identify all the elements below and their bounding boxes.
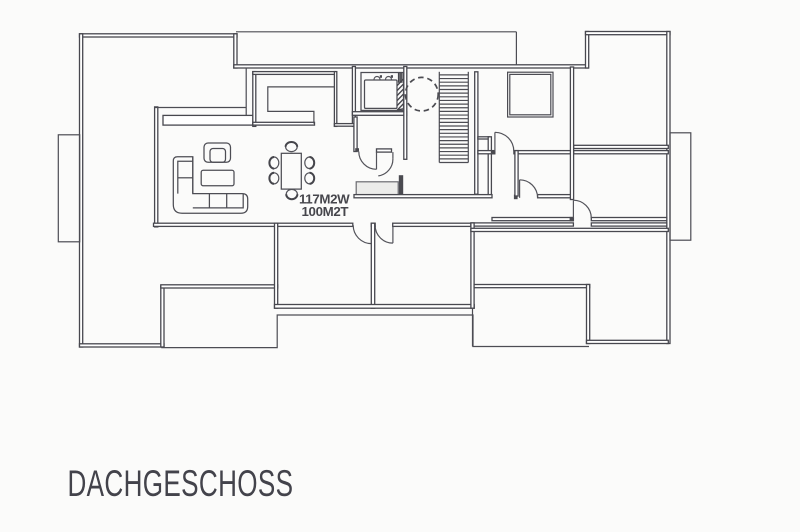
svg-text:DACHGESCHOSS: DACHGESCHOSS <box>68 462 294 504</box>
svg-text:100M2T: 100M2T <box>302 204 349 219</box>
